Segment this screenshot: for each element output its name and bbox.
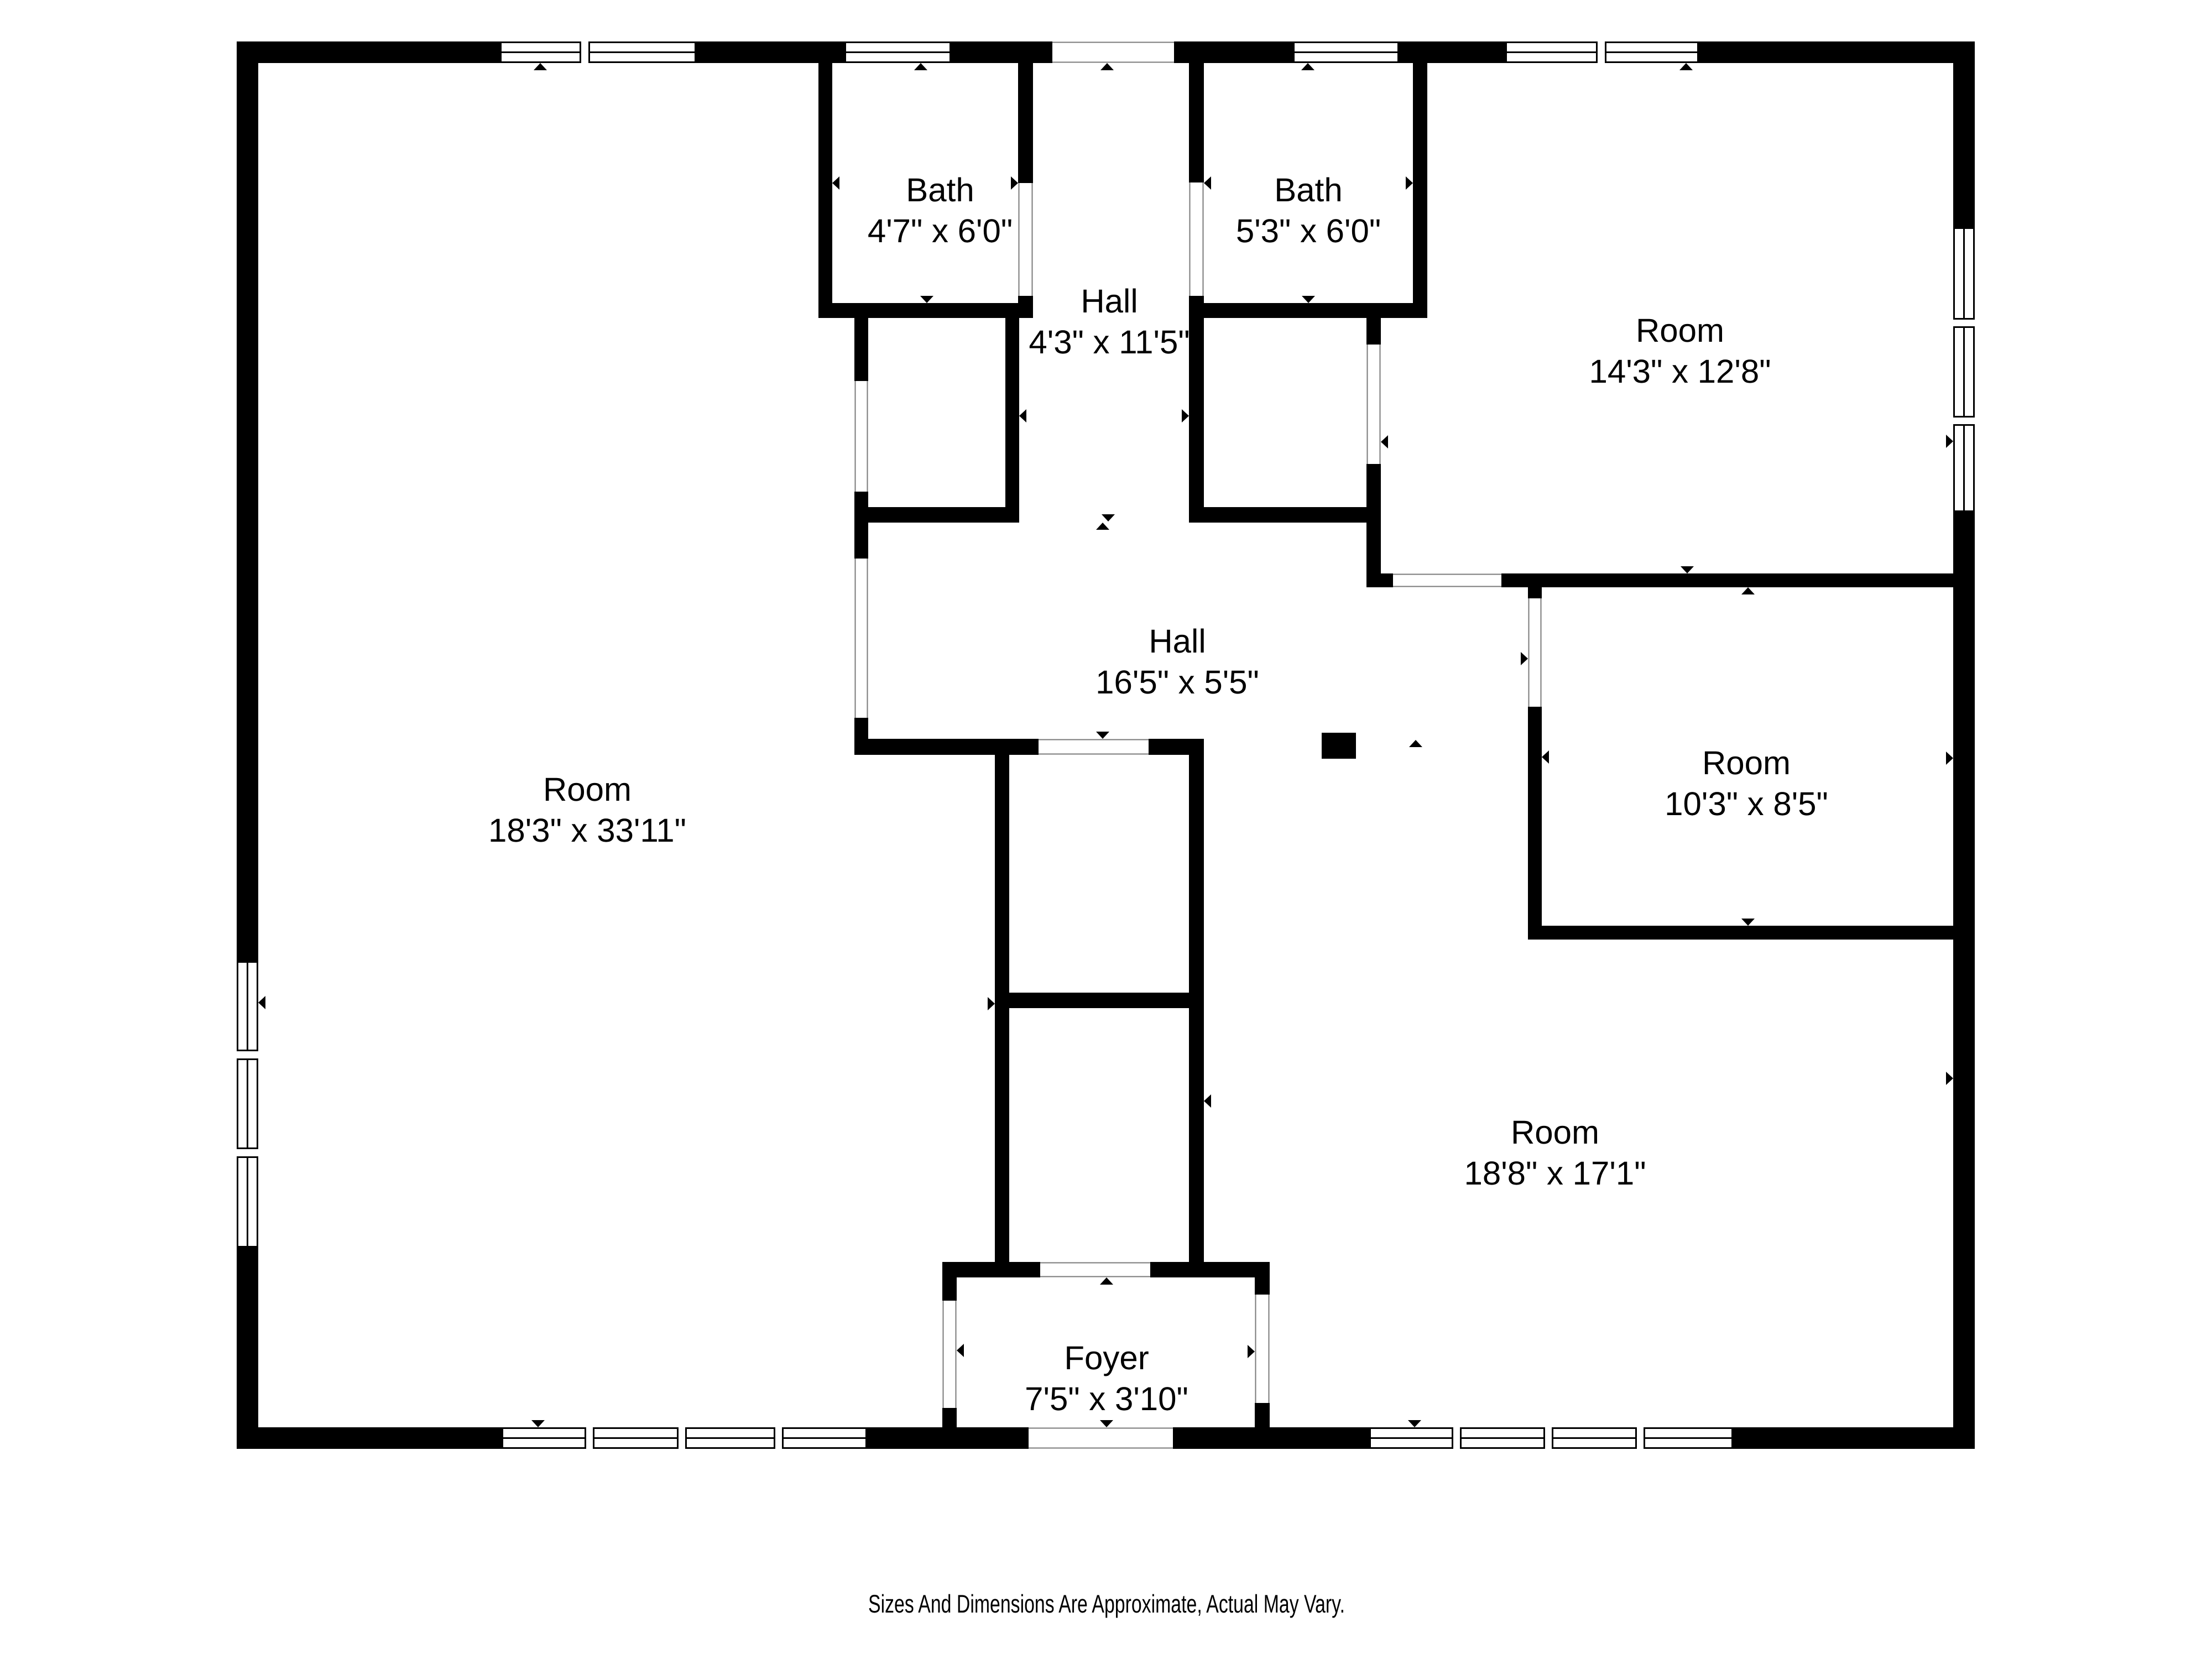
svg-text:Room: Room xyxy=(1702,744,1791,781)
svg-text:5'3" x 6'0": 5'3" x 6'0" xyxy=(1236,212,1381,249)
svg-text:16'5" x 5'5": 16'5" x 5'5" xyxy=(1095,664,1259,701)
svg-text:Foyer: Foyer xyxy=(1064,1339,1149,1376)
svg-text:4'3" x 11'5": 4'3" x 11'5" xyxy=(1029,324,1190,361)
svg-text:Sizes And Dimensions Are Appro: Sizes And Dimensions Are Approximate, Ac… xyxy=(868,1589,1345,1618)
svg-text:7'5" x 3'10": 7'5" x 3'10" xyxy=(1025,1380,1188,1417)
svg-text:Room: Room xyxy=(1636,312,1724,349)
svg-text:18'8" x 17'1": 18'8" x 17'1" xyxy=(1464,1155,1646,1192)
svg-text:Hall: Hall xyxy=(1081,283,1138,320)
svg-text:4'7" x 6'0": 4'7" x 6'0" xyxy=(868,212,1013,249)
svg-text:Room: Room xyxy=(543,771,632,808)
svg-text:Bath: Bath xyxy=(1274,171,1342,208)
svg-text:18'3" x 33'11": 18'3" x 33'11" xyxy=(488,812,686,849)
svg-text:Room: Room xyxy=(1511,1114,1599,1151)
svg-text:Bath: Bath xyxy=(906,171,974,208)
svg-text:14'3" x 12'8": 14'3" x 12'8" xyxy=(1589,353,1771,390)
svg-text:10'3" x 8'5": 10'3" x 8'5" xyxy=(1665,785,1828,822)
svg-text:Hall: Hall xyxy=(1149,623,1206,660)
